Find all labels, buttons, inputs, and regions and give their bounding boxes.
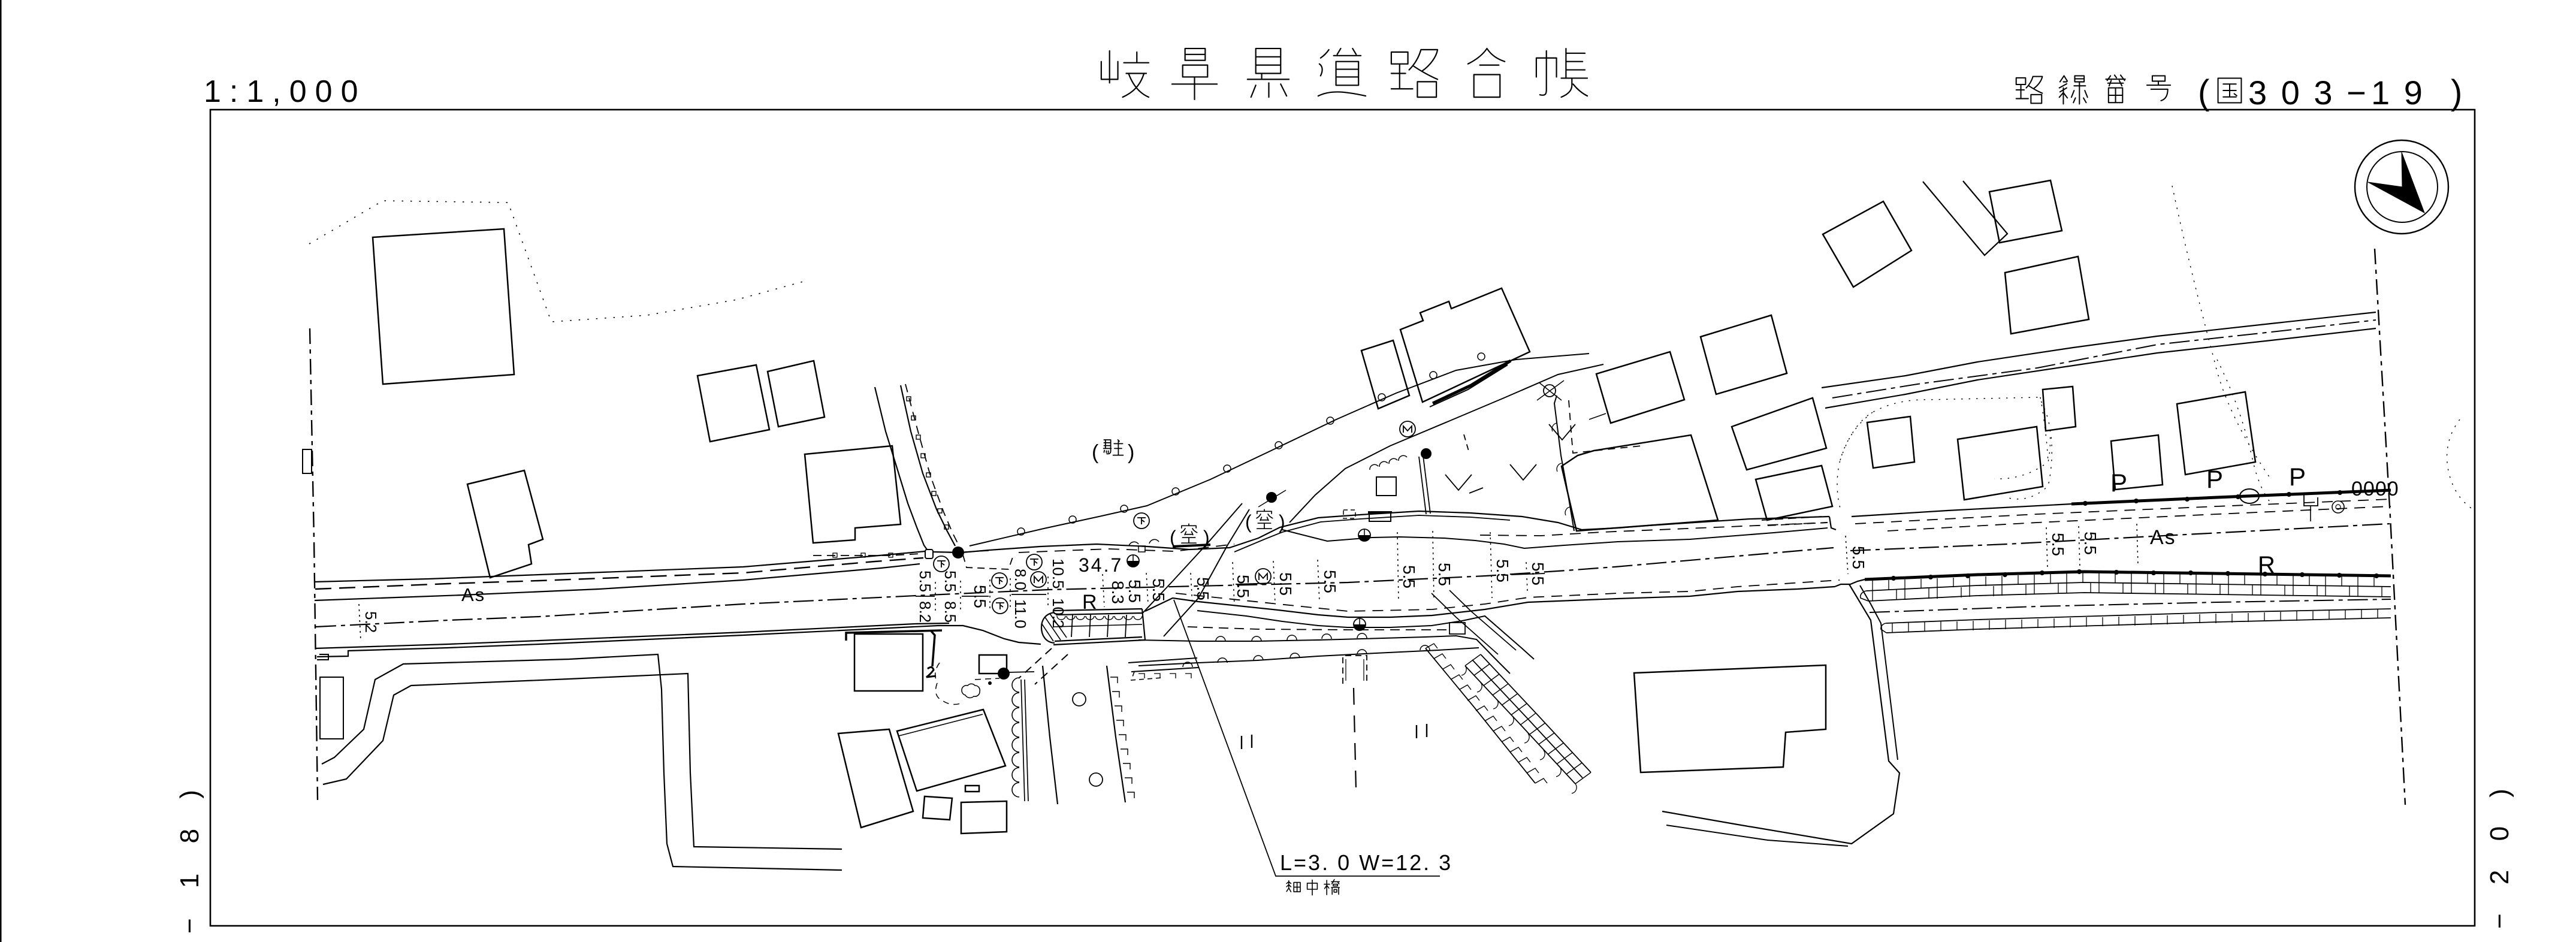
svg-text:8.3: 8.3 <box>1109 581 1127 604</box>
svg-text:5.5: 5.5 <box>1234 575 1252 598</box>
svg-text:L=3. 0 W=12. 3: L=3. 0 W=12. 3 <box>1280 850 1452 875</box>
svg-text:3 0 3 −: 3 0 3 − <box>2248 74 2369 111</box>
svg-text:As: As <box>2150 526 2176 549</box>
svg-text:1:1,000: 1:1,000 <box>204 74 367 109</box>
svg-text:8.5: 8.5 <box>941 601 959 623</box>
svg-text:5.5: 5.5 <box>1529 562 1547 585</box>
svg-text:5.5: 5.5 <box>1125 579 1144 603</box>
svg-text:): ) <box>1128 441 1134 464</box>
svg-text:5.5: 5.5 <box>941 570 959 592</box>
svg-text:(: ( <box>1092 441 1099 464</box>
svg-text:5.5: 5.5 <box>971 585 989 608</box>
svg-text:): ) <box>1203 527 1210 548</box>
svg-text:− 1 8 ): − 1 8 ) <box>175 778 204 934</box>
svg-text:11.0: 11.0 <box>1011 599 1029 629</box>
svg-text:P: P <box>2289 463 2306 491</box>
svg-text:5.5: 5.5 <box>1493 559 1512 582</box>
svg-text:As: As <box>461 584 485 605</box>
svg-text:(: ( <box>1170 527 1176 548</box>
svg-text:5.5: 5.5 <box>1849 546 1868 569</box>
svg-text:− 2 0 ): − 2 0 ) <box>2485 778 2514 929</box>
svg-text:8.2: 8.2 <box>916 601 934 623</box>
svg-text:): ) <box>1279 511 1285 533</box>
svg-text:5.5: 5.5 <box>1321 570 1339 593</box>
svg-text:P: P <box>2110 469 2127 497</box>
svg-text:5.2: 5.2 <box>362 611 380 633</box>
svg-text:5.5: 5.5 <box>916 570 934 592</box>
svg-text:1 9: 1 9 <box>2371 74 2425 111</box>
svg-text:10.5: 10.5 <box>1049 558 1067 589</box>
svg-text:(: ( <box>1245 511 1252 533</box>
svg-text:5.5: 5.5 <box>1435 563 1454 586</box>
svg-text:8.0: 8.0 <box>1011 569 1029 590</box>
svg-text:5.5: 5.5 <box>1400 565 1418 588</box>
svg-text:34.7: 34.7 <box>1079 554 1123 576</box>
svg-text:(: ( <box>2198 73 2209 112</box>
svg-text:5.5: 5.5 <box>2049 533 2067 556</box>
svg-text:0000: 0000 <box>2351 478 2399 500</box>
svg-text:5.5: 5.5 <box>2081 532 2100 555</box>
svg-text:): ) <box>2451 73 2462 112</box>
svg-text:5.5: 5.5 <box>1276 572 1295 596</box>
